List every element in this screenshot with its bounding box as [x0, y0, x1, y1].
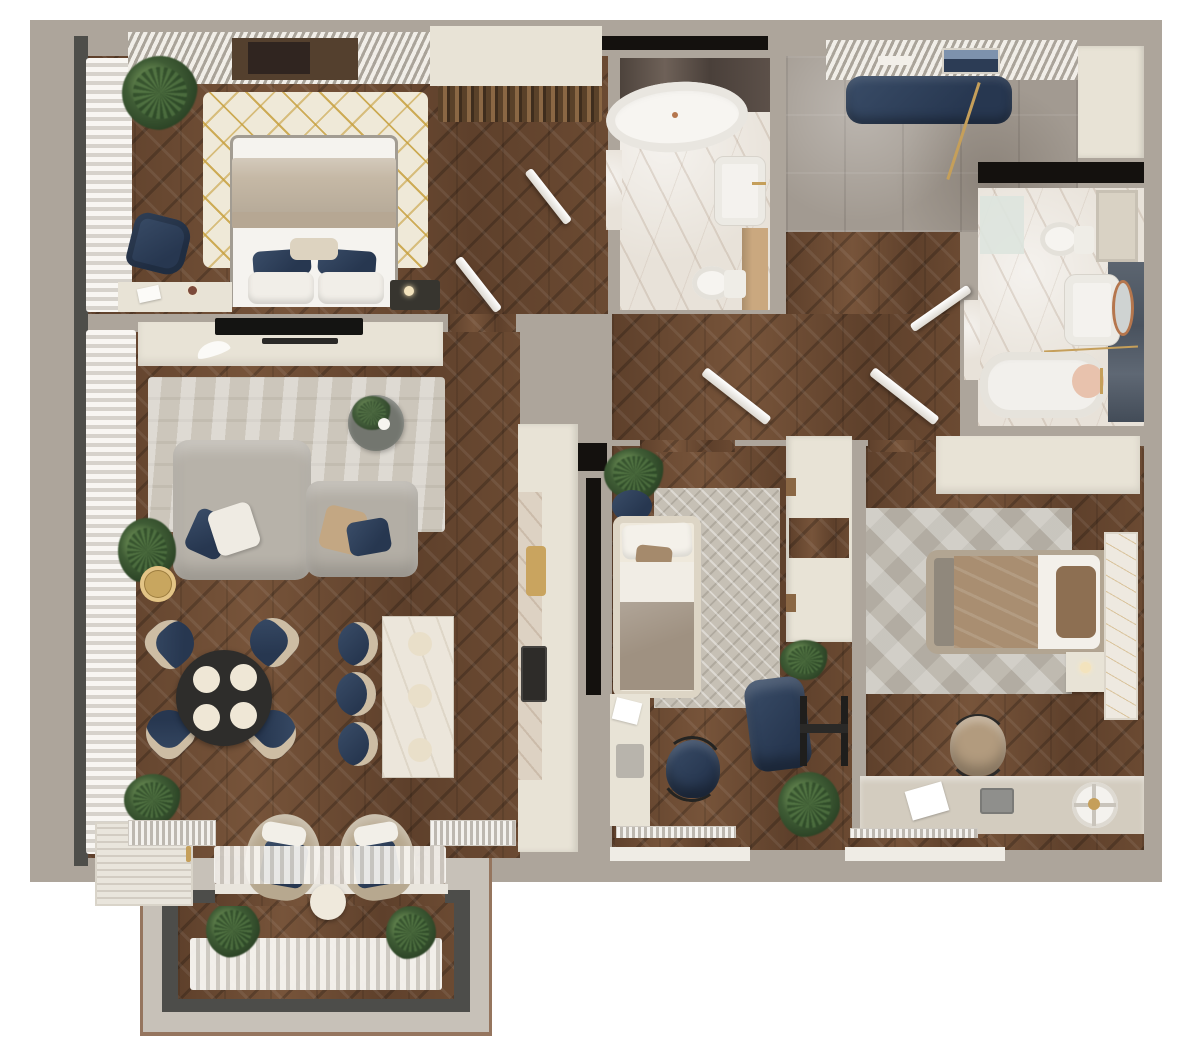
- bedroom1-wardrobe-core: [248, 42, 310, 74]
- dining-plate-2: [230, 664, 257, 691]
- coffee-table-vase: [378, 418, 390, 430]
- washbasin1-tap: [752, 182, 766, 185]
- kids-doorway: [640, 440, 735, 452]
- bedroom1-vanity-desk: [118, 282, 232, 312]
- bedroom2-desk-chair: [950, 716, 1006, 776]
- tv: [215, 318, 363, 335]
- toilet-2-tank: [1074, 226, 1094, 254]
- radiator-living-right: [430, 820, 516, 846]
- bedroom2-bed-blanket: [954, 556, 1040, 648]
- soundbar: [262, 338, 338, 344]
- kids-bed-sheet: [620, 562, 694, 604]
- bedroom1-plant: [122, 56, 198, 130]
- balcony-round-table: [310, 884, 346, 920]
- bedroom2-bed-foot: [934, 558, 956, 646]
- dining-plate-1: [193, 666, 220, 693]
- floor-plan-canvas: [0, 0, 1199, 1042]
- bedroom2-wall-art: [1104, 532, 1138, 720]
- bedroom1-nightstand: [390, 280, 440, 310]
- bathroom1-doorway: [606, 150, 622, 230]
- bedroom2-window-sill: [845, 847, 1005, 861]
- kids-desk-chair: [666, 740, 720, 798]
- kids-wardrobe-wood-band: [789, 518, 849, 558]
- dining-plate-3: [193, 704, 220, 731]
- dining-table: [176, 650, 272, 746]
- entry-wall-picture: [942, 48, 1000, 74]
- entry-shelf-object: [878, 56, 912, 65]
- bar-stool-2: [336, 672, 376, 716]
- sideboard-handle: [186, 846, 191, 862]
- round-mirror: [1112, 280, 1134, 336]
- vanity-lamp: [188, 286, 197, 295]
- gold-side-table: [140, 566, 176, 602]
- desk-fan-hub: [1088, 798, 1100, 810]
- dressing-top-cabinet: [430, 26, 602, 86]
- entry-bench: [846, 76, 1012, 124]
- kids-wardrobe-handle-1: [786, 478, 796, 496]
- kids-desk-tablet: [616, 744, 644, 778]
- shower-glass-panel: [980, 196, 1024, 254]
- nightstand-lamp: [404, 286, 414, 296]
- nightstand2-lamp: [1080, 662, 1091, 673]
- bar-stool-3: [338, 722, 378, 766]
- dressing-clothes-rack: [438, 86, 602, 122]
- washbasin-1: [714, 156, 766, 226]
- living-curtains: [86, 330, 136, 854]
- bed-pillow-accent: [290, 238, 338, 260]
- living-balcony-curtain: [214, 846, 446, 884]
- kids-plant-mid: [780, 640, 830, 680]
- bedroom2-wardrobe: [936, 436, 1140, 494]
- kitchen-niche: [577, 443, 607, 471]
- cooktop: [521, 646, 547, 702]
- dining-plate-4: [230, 702, 257, 729]
- balcony-plant-left: [206, 902, 260, 958]
- island-plate-3: [408, 738, 432, 762]
- living-plant-sw: [124, 774, 182, 826]
- bed-blanket-fold: [232, 212, 396, 228]
- kitchen-marble-splash: [518, 492, 542, 780]
- kids-bed-blanket: [620, 602, 694, 690]
- bathroom2-doorway: [964, 300, 980, 380]
- hallway-floor: [612, 314, 960, 440]
- radiator-living-left: [128, 820, 216, 846]
- island-plate-1: [408, 632, 432, 656]
- bedroom2-laptop: [980, 788, 1014, 814]
- balcony-plant-right: [386, 906, 436, 960]
- bar-stool-1: [338, 622, 378, 666]
- kids-easel-bar: [800, 724, 848, 733]
- bathtub-drain: [672, 112, 678, 118]
- bedroom1-doorway: [448, 314, 516, 332]
- entry-wardrobe: [1078, 46, 1144, 158]
- kids-plant-bottom: [778, 772, 840, 838]
- bed-pillow-white-left: [248, 272, 314, 304]
- bathroom2-wall-cabinet: [1096, 190, 1138, 262]
- kids-window-sill: [610, 847, 750, 861]
- bedroom2-pillow: [1056, 566, 1096, 638]
- kids-door-gap: [586, 478, 601, 695]
- bed-pillow-white-right: [318, 272, 384, 304]
- cutting-board: [526, 546, 546, 596]
- kids-wardrobe-handle-2: [786, 594, 796, 612]
- bathroom1-ceiling-niche: [592, 36, 768, 50]
- bathroom2-ceiling-niche: [978, 162, 1144, 183]
- toilet-1-tank: [724, 270, 746, 298]
- bathroom1-vanity-side: [742, 228, 768, 310]
- shower-hardware: [1100, 368, 1103, 394]
- island-plate-2: [408, 684, 432, 708]
- sofa-pillow-navy-2: [345, 517, 392, 558]
